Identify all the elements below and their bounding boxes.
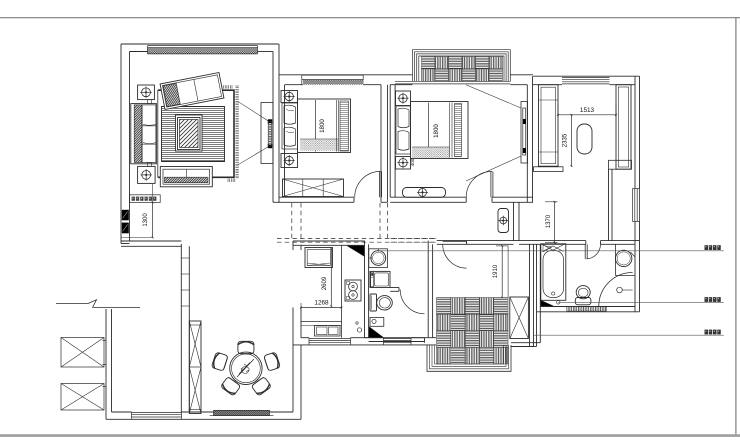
svg-text:1370: 1370 xyxy=(546,214,552,228)
svg-text:1268: 1268 xyxy=(314,300,329,307)
svg-text:1910: 1910 xyxy=(493,264,499,278)
svg-text:2609: 2609 xyxy=(322,276,328,290)
svg-text:1800: 1800 xyxy=(433,124,440,138)
svg-text:1800: 1800 xyxy=(319,119,326,133)
svg-text:2335: 2335 xyxy=(563,133,569,147)
svg-text:1300: 1300 xyxy=(143,213,149,227)
svg-text:1513: 1513 xyxy=(580,107,595,114)
svg-text:400: 400 xyxy=(410,158,415,166)
